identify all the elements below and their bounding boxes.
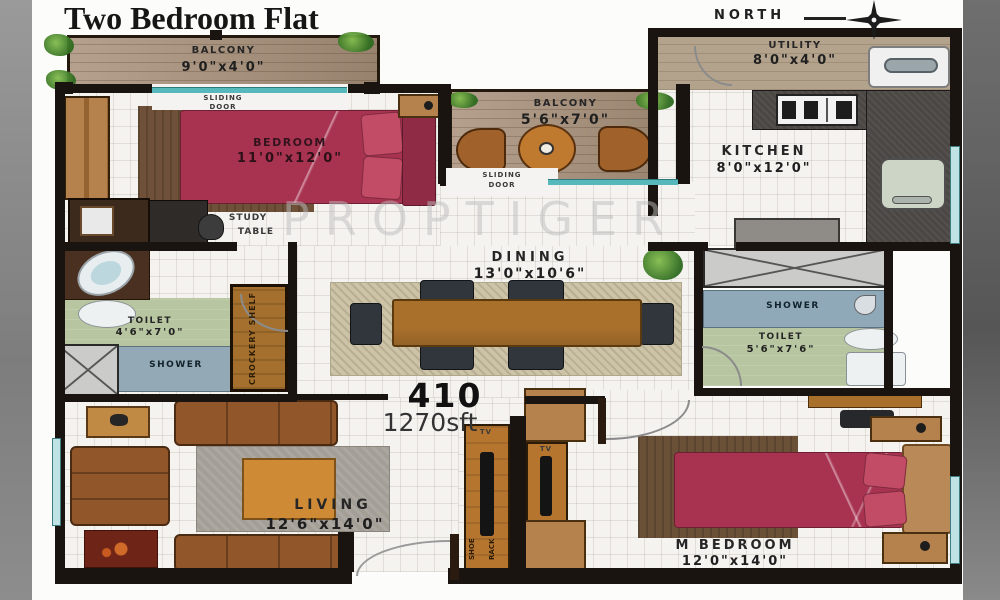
sliding-door-label: DOOR	[452, 181, 552, 189]
dresser-mirror	[80, 206, 114, 236]
room-bedroom-dims: 11'0"x12'0"	[160, 151, 420, 166]
wall	[884, 388, 962, 396]
wall	[510, 416, 526, 574]
wall	[346, 84, 450, 93]
wall	[648, 28, 962, 37]
sliding-door	[152, 87, 347, 93]
shaft-x-box	[703, 248, 886, 288]
dining-chair	[350, 303, 382, 345]
window	[950, 146, 960, 244]
toilet-left-label: TOILET	[78, 316, 222, 326]
room-m-bedroom-label: M BEDROOM	[620, 538, 850, 553]
accent-rug	[84, 530, 158, 568]
window	[52, 438, 61, 526]
wc-icon	[846, 352, 906, 386]
room-dining-label: DINING	[430, 250, 630, 265]
stove-icon	[776, 94, 858, 126]
tv-label: TV	[466, 428, 506, 436]
wall	[338, 532, 354, 572]
photo-left-border	[0, 0, 32, 600]
sliding-door	[548, 179, 678, 185]
room-kitchen-label: KITCHEN	[664, 144, 864, 159]
balcony-table-center	[539, 142, 554, 155]
dining-table	[392, 299, 642, 347]
study-table-label: STUDY	[208, 213, 288, 223]
room-kitchen-dims: 8'0"x12'0"	[658, 161, 870, 176]
wall	[694, 388, 894, 396]
door-leaf	[598, 398, 606, 444]
tv-icon	[480, 452, 494, 536]
balcony-chair	[598, 126, 652, 172]
wall	[448, 568, 962, 584]
wall	[55, 242, 237, 251]
tv-label: TV	[528, 445, 564, 453]
dining-chair	[640, 303, 674, 345]
study-table-label: TABLE	[216, 227, 296, 237]
side-table-decor	[110, 414, 128, 426]
wall	[55, 568, 352, 584]
north-dash	[804, 17, 846, 20]
wall	[288, 242, 297, 402]
room-living-dims: 12'6"x14'0"	[200, 515, 450, 533]
toilet-right-label: TOILET	[706, 332, 856, 342]
room-balcony-mid-dims: 5'6"x7'0"	[452, 112, 679, 128]
room-m-bedroom-dims: 12'0"x14'0"	[615, 554, 855, 569]
room-utility-dims: 8'0"x4'0"	[690, 53, 900, 68]
page-title: Two Bedroom Flat	[64, 0, 319, 37]
lamp-icon	[916, 423, 926, 433]
pillow	[862, 452, 907, 490]
wall	[60, 84, 152, 93]
balcony-chair	[456, 128, 506, 172]
lamp-icon	[920, 541, 930, 551]
room-dining-dims: 13'0"x10'6"	[405, 266, 655, 282]
tv-icon	[540, 456, 552, 516]
room-balcony-top-dims: 9'0"x4'0"	[70, 60, 377, 75]
dining-chair	[508, 344, 564, 370]
shoe-rack-label: RACK	[488, 528, 496, 570]
lamp-icon	[424, 101, 433, 110]
room-balcony-mid-label: BALCONY	[452, 98, 679, 109]
photo-right-border	[963, 0, 1000, 600]
bedside-table	[398, 94, 440, 118]
wall	[884, 242, 893, 395]
room-living-label: LIVING	[248, 497, 418, 513]
bedside-table	[882, 532, 948, 564]
room-balcony-top-label: BALCONY	[70, 45, 377, 56]
room-bedroom-label: BEDROOM	[160, 136, 420, 149]
sliding-door-label: DOOR	[168, 103, 278, 111]
cabinet	[524, 520, 586, 572]
sofa	[174, 400, 338, 446]
pillow	[863, 490, 908, 528]
toilet-left-dims: 4'6"x7'0"	[76, 327, 224, 338]
shower-left-label: SHOWER	[124, 360, 228, 370]
wall	[736, 242, 962, 251]
window	[950, 476, 960, 564]
wall	[525, 396, 605, 404]
kitchen-sink-tap	[892, 196, 932, 204]
bed-headboard	[902, 444, 952, 534]
sofa	[174, 534, 344, 572]
dining-chair	[420, 344, 474, 370]
shaft-x-box	[57, 344, 119, 396]
crockery-shelf-label: CROCKERY SHELF	[248, 290, 257, 386]
sliding-door-label: SLIDING	[168, 94, 278, 102]
shoe-rack-label: SHOE	[468, 528, 476, 570]
wardrobe	[64, 96, 110, 200]
entry-door-leaf	[450, 534, 459, 580]
toilet-right-dims: 5'6"x7'6"	[700, 344, 862, 355]
sofa	[70, 446, 170, 526]
north-label: NORTH	[714, 8, 785, 23]
wall	[55, 394, 295, 402]
pillow	[360, 111, 404, 156]
shower-right-label: SHOWER	[718, 301, 868, 311]
wall	[648, 28, 658, 92]
wall	[288, 394, 388, 400]
compass-icon	[844, 0, 904, 40]
bedside-table	[870, 416, 942, 442]
floor-plan-page: { "header": { "title": "Two Bedroom Flat…	[0, 0, 1000, 600]
dressing-table	[808, 394, 922, 408]
watermark: PROPTIGER	[282, 192, 679, 246]
sliding-door-label: SLIDING	[452, 171, 552, 179]
room-utility-label: UTILITY	[690, 40, 900, 51]
